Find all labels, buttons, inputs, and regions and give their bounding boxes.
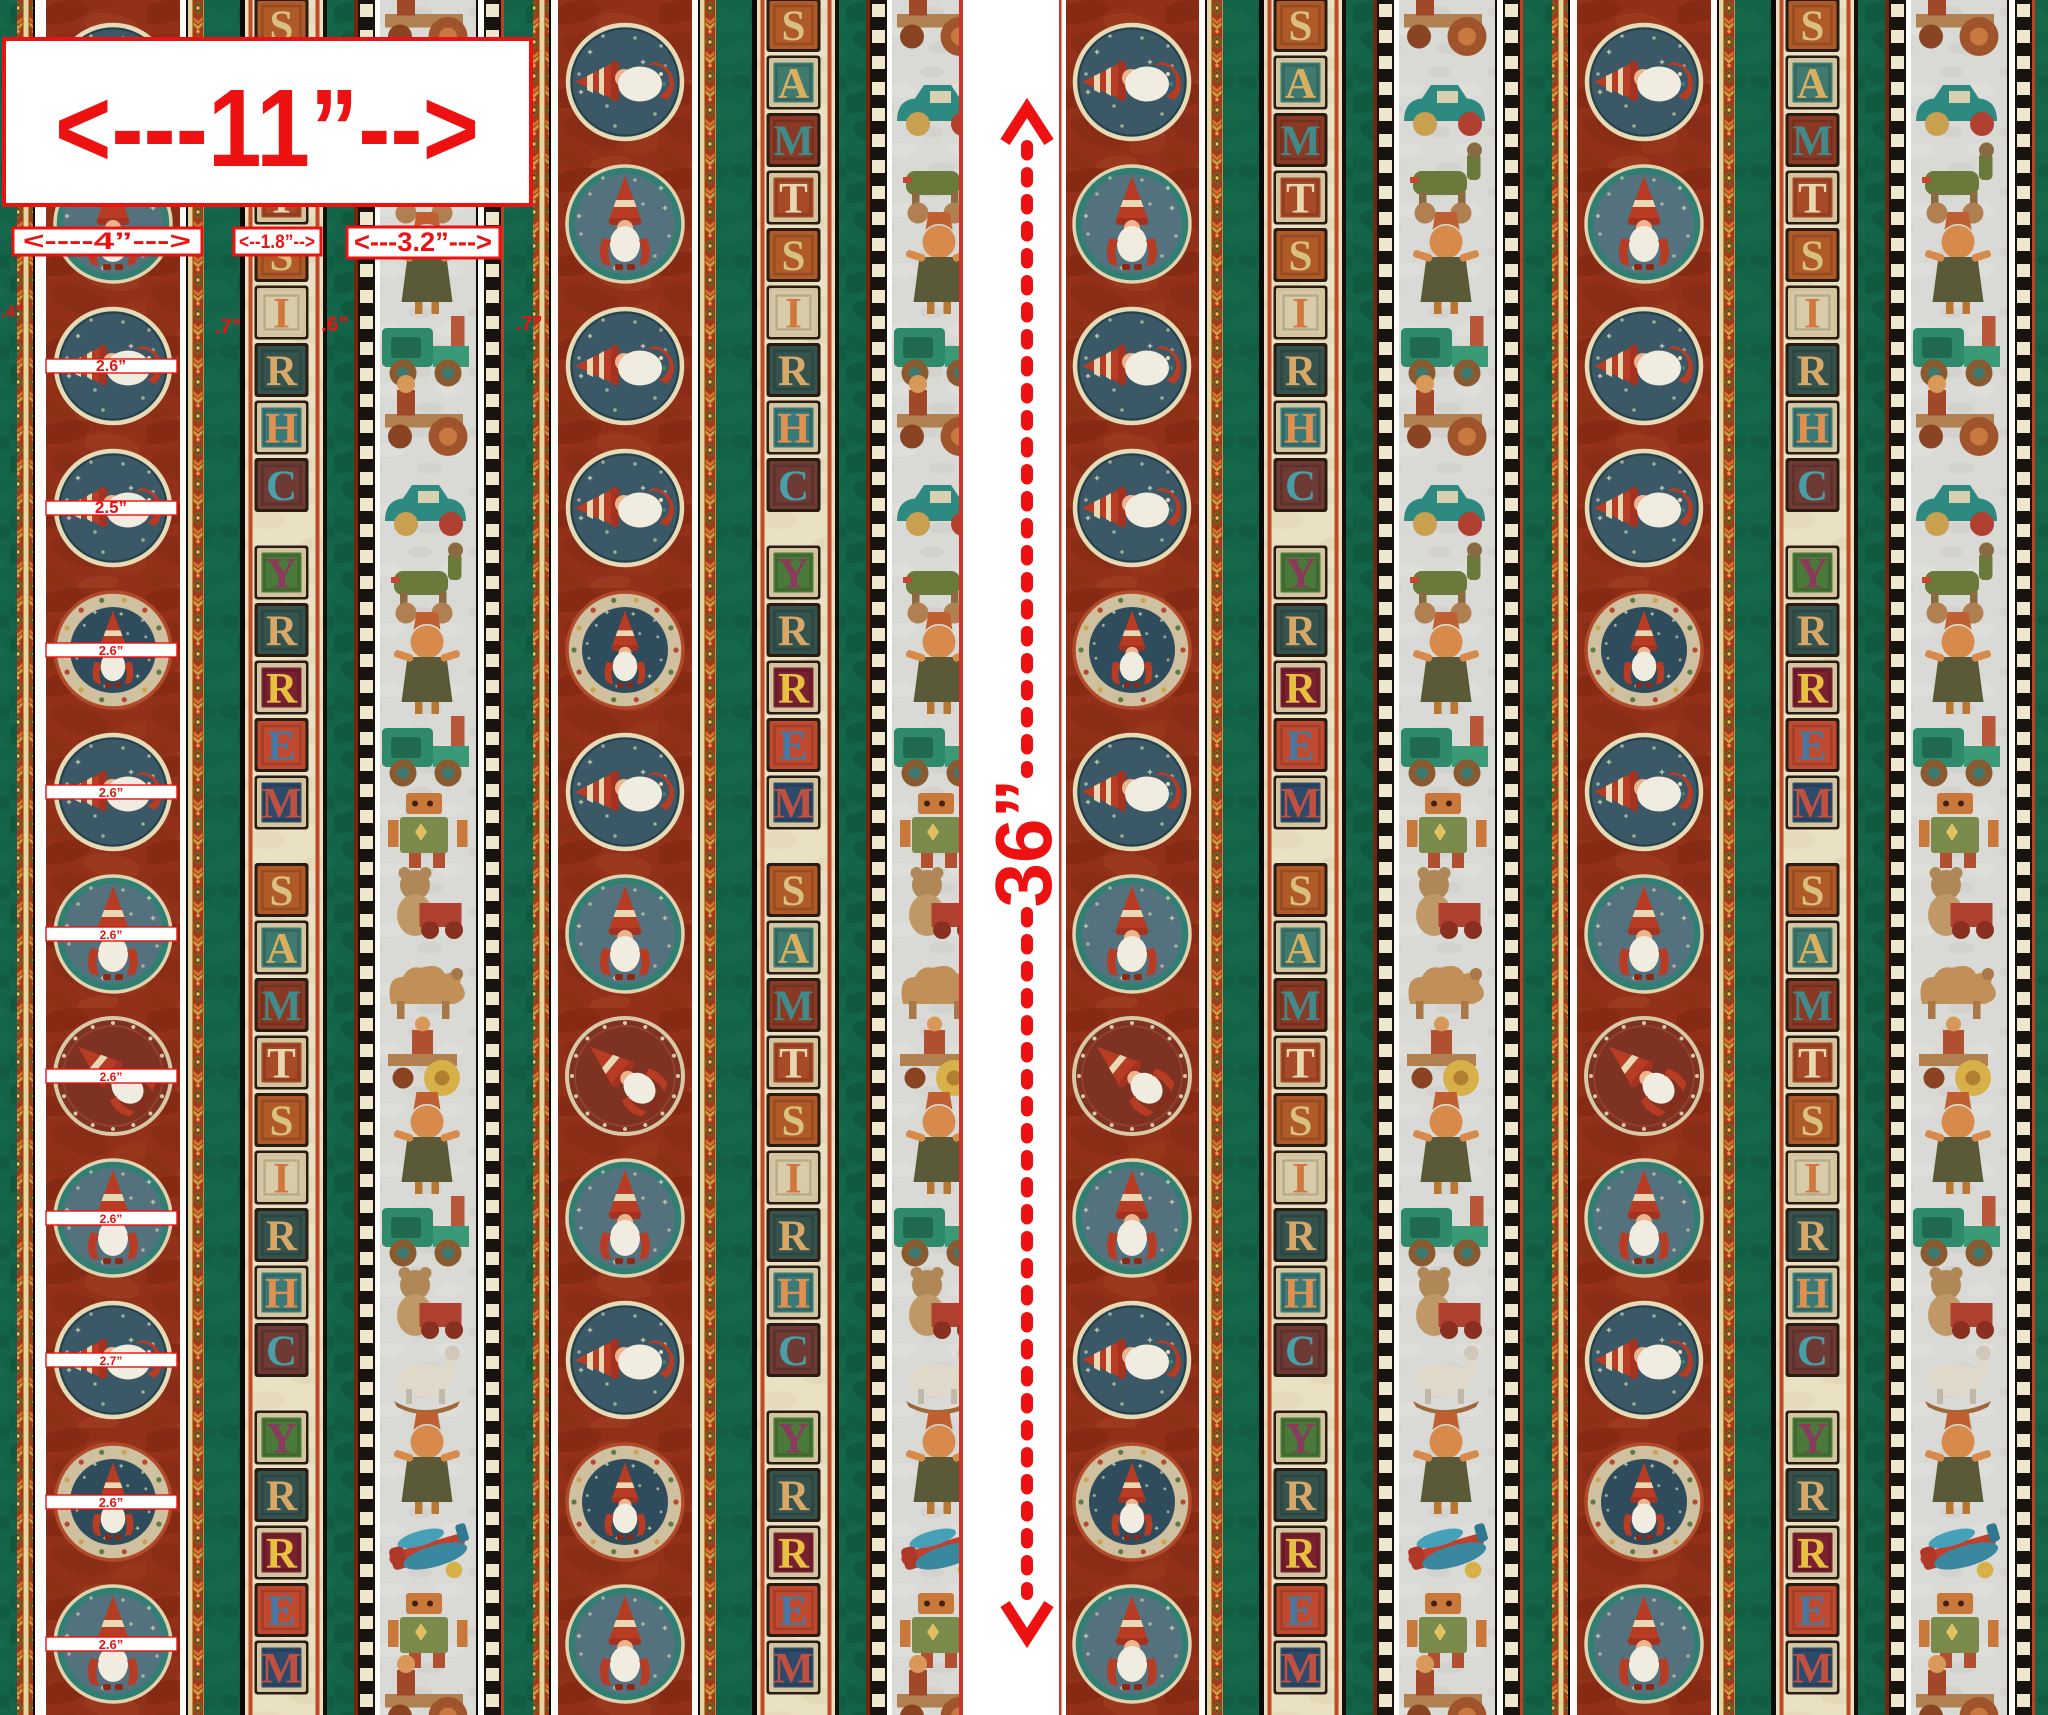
svg-text:2.6”: 2.6” xyxy=(96,358,126,375)
svg-text:2.6”: 2.6” xyxy=(99,1637,124,1652)
svg-text:2.6”: 2.6” xyxy=(100,928,123,942)
svg-text:<--1.8”-->: <--1.8”--> xyxy=(239,232,315,253)
svg-text:2.6”: 2.6” xyxy=(100,1070,123,1084)
svg-text:<---3.2”--->: <---3.2”---> xyxy=(354,227,492,257)
svg-text:<----4”--->: <----4”---> xyxy=(23,228,191,255)
svg-text:2.6”: 2.6” xyxy=(99,785,124,800)
svg-text:2.6”: 2.6” xyxy=(100,1212,123,1226)
svg-text:.7”: .7” xyxy=(516,313,543,335)
svg-text:.4”: .4” xyxy=(1,302,24,321)
svg-text:2.7”: 2.7” xyxy=(100,1354,123,1368)
svg-text:2.5”: 2.5” xyxy=(95,498,127,517)
svg-text:36”: 36” xyxy=(979,779,1068,908)
svg-text:.6”: .6” xyxy=(321,313,349,336)
svg-text:<---11”-->: <---11”--> xyxy=(55,67,479,190)
svg-text:2.6”: 2.6” xyxy=(99,643,124,658)
svg-text:.7”: .7” xyxy=(215,316,242,338)
svg-text:2.6”: 2.6” xyxy=(99,1495,124,1510)
